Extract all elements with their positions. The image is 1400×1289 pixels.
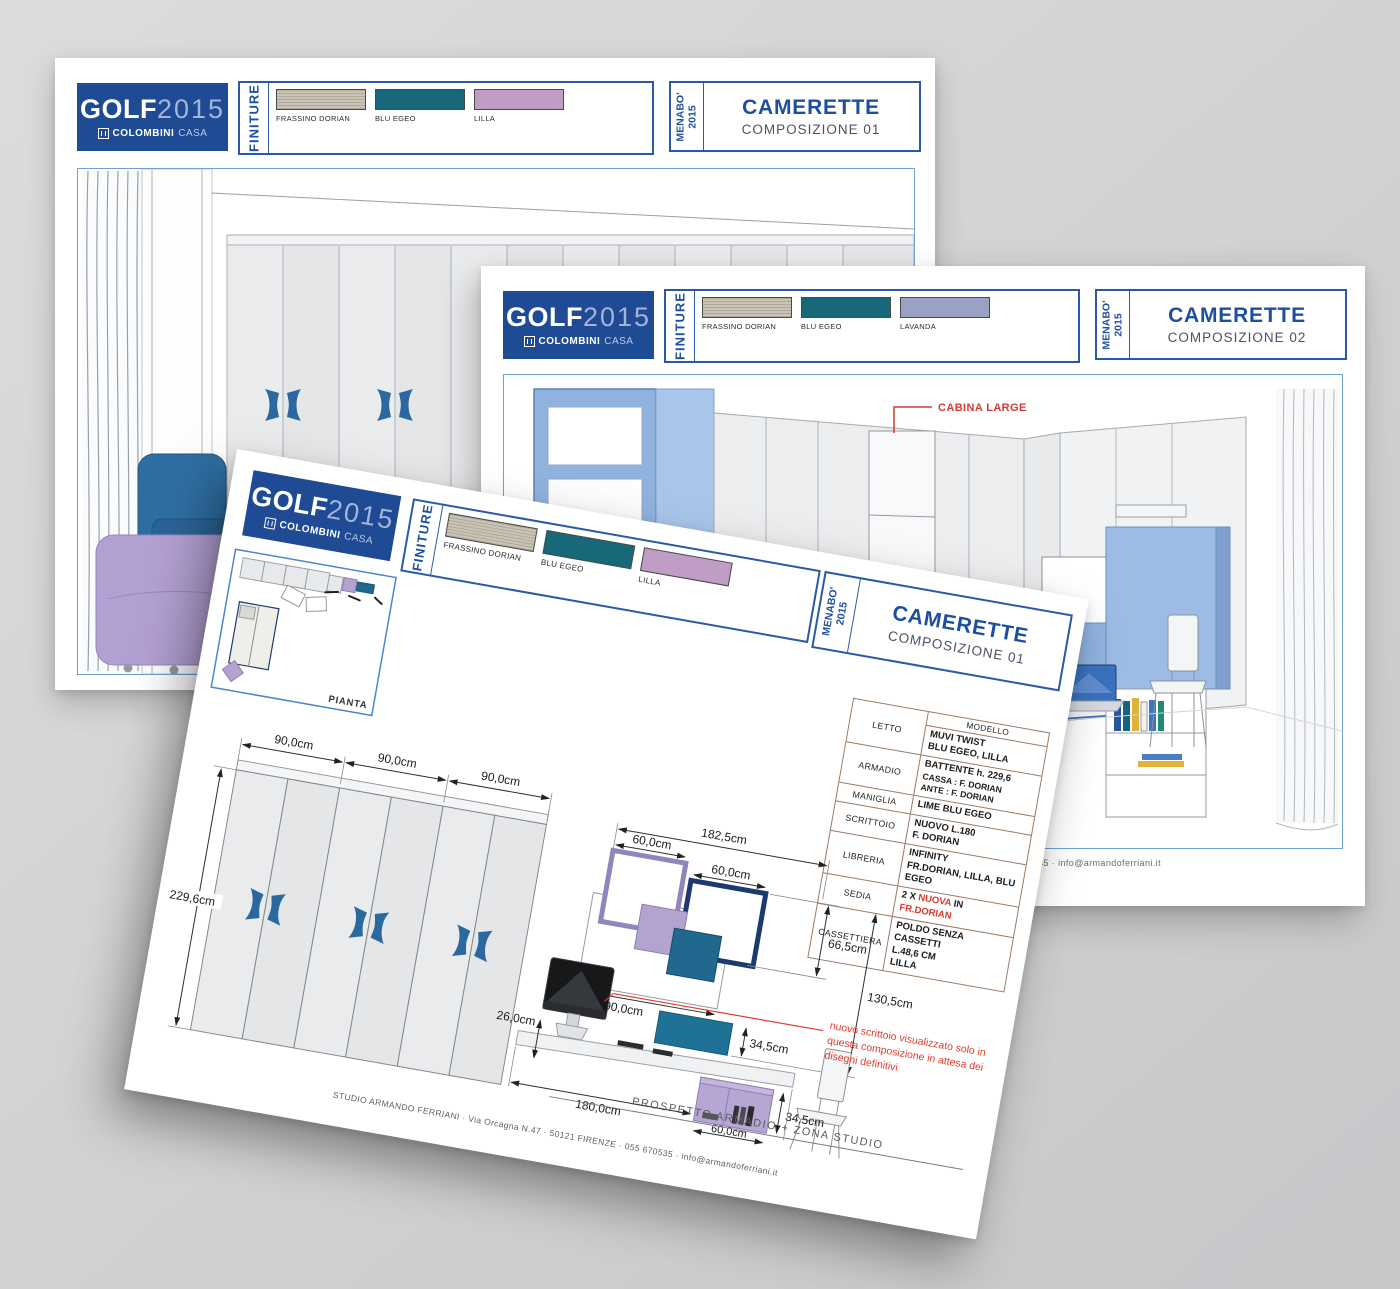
finish-swatches: FRASSINO DORIAN BLU EGEO LILLA — [276, 89, 564, 123]
cabina-large-callout: CABINA LARGE — [894, 402, 1027, 433]
finiture-strip: FINITURE — [666, 291, 695, 361]
swatch-chip — [900, 297, 990, 318]
swatch-frassino-dorian: FRASSINO DORIAN — [276, 89, 366, 123]
menabo-strip: MENABO'2015 — [671, 83, 704, 150]
sheet-subtitle: COMPOSIZIONE 02 — [1168, 330, 1307, 345]
title-box: MENABO'2015 CAMERETTE COMPOSIZIONE 02 — [1095, 289, 1347, 360]
title-box: MENABO'2015 CAMERETTE COMPOSIZIONE 01 — [811, 571, 1073, 692]
svg-text:229,6cm: 229,6cm — [168, 887, 216, 909]
golf-2015-logo: GOLF2015 COLOMBINICASA — [77, 83, 228, 151]
finiture-box: FINITURE FRASSINO DORIAN BLU EGEO LAVAND… — [664, 289, 1080, 363]
swatch-blu-egeo: BLU EGEO — [375, 89, 465, 123]
logo-wordmark: GOLF2015 — [506, 304, 651, 331]
plan-chair — [306, 597, 326, 612]
sheet-subtitle: COMPOSIZIONE 01 — [742, 122, 881, 137]
svg-text:130,5cm: 130,5cm — [866, 990, 914, 1012]
curtain-right — [1276, 389, 1338, 830]
menabo-label: MENABO'2015 — [1101, 300, 1124, 349]
swatch-lavanda: LAVANDA — [900, 297, 990, 331]
swatch-chip — [702, 297, 792, 318]
finiture-label: FINITURE — [409, 503, 436, 573]
cabina-large-label: CABINA LARGE — [938, 402, 1027, 414]
finiture-strip: FINITURE — [240, 83, 269, 153]
finiture-box: FINITURE FRASSINO DORIAN BLU EGEO LILLA — [238, 81, 654, 155]
logo-wordmark: GOLF2015 — [80, 96, 225, 123]
logo-company-line: COLOMBINICASA — [98, 128, 208, 139]
svg-text:90,0cm: 90,0cm — [377, 750, 418, 771]
swatch-blu-egeo: BLU EGEO — [540, 530, 635, 582]
svg-text:60,0cm: 60,0cm — [631, 832, 672, 853]
finiture-label: FINITURE — [247, 84, 262, 152]
svg-text:66,5cm: 66,5cm — [827, 936, 868, 957]
shelf-cube-teal — [666, 928, 721, 982]
imac — [538, 957, 614, 1043]
swatch-chip — [276, 89, 366, 110]
sheet-title-block: CAMERETTE COMPOSIZIONE 01 — [847, 579, 1071, 689]
swatch-blu-egeo: BLU EGEO — [801, 297, 891, 331]
finiture-strip: FINITURE — [403, 501, 444, 575]
logo-company-line: COLOMBINICASA — [524, 336, 634, 347]
desk-background: GOLF2015 COLOMBINICASA FINITURE FRASSINO… — [0, 0, 1400, 1289]
golf-2015-logo: GOLF2015 COLOMBINICASA — [503, 291, 654, 359]
svg-text:182,5cm: 182,5cm — [700, 826, 748, 848]
bookshelf — [1106, 689, 1206, 817]
swatch-chip — [801, 297, 891, 318]
sheet-title: CAMERETTE — [742, 96, 880, 119]
menabo-label: MENABO'2015 — [821, 586, 852, 638]
sheet-title: CAMERETTE — [1168, 304, 1306, 327]
finish-swatches: FRASSINO DORIAN BLU EGEO LAVANDA — [702, 297, 990, 331]
menabo-label: MENABO'2015 — [675, 92, 698, 141]
swatch-chip — [474, 89, 564, 110]
swatch-frassino-dorian: FRASSINO DORIAN — [702, 297, 792, 331]
shelf-box-teal — [654, 1011, 732, 1055]
title-box: MENABO'2015 CAMERETTE COMPOSIZIONE 01 — [669, 81, 921, 152]
golf-2015-logo: GOLF2015 COLOMBINICASA — [242, 470, 401, 561]
swatch-lilla: LILLA — [474, 89, 564, 123]
svg-text:60,0cm: 60,0cm — [710, 862, 751, 883]
colombini-mark-icon — [264, 517, 277, 530]
pianta-plan-box: PIANTA — [210, 548, 397, 716]
swatch-chip — [375, 89, 465, 110]
menabo-strip: MENABO'2015 — [1097, 291, 1130, 358]
pianta-svg: PIANTA — [210, 548, 397, 716]
swatch-lilla: LILLA — [638, 547, 733, 599]
svg-text:90,0cm: 90,0cm — [480, 768, 521, 789]
colombini-mark-icon — [98, 128, 109, 139]
svg-text:90,0cm: 90,0cm — [273, 732, 314, 753]
ceiling-line — [212, 193, 914, 229]
wardrobe-elevation — [190, 760, 548, 1085]
sheet-title-block: CAMERETTE COMPOSIZIONE 01 — [703, 83, 919, 150]
svg-text:34,5cm: 34,5cm — [748, 1036, 789, 1057]
finiture-label: FINITURE — [673, 292, 688, 360]
sheet-title-block: CAMERETTE COMPOSIZIONE 02 — [1129, 291, 1345, 358]
swatch-frassino-dorian: FRASSINO DORIAN — [443, 513, 538, 565]
plan-lilac-unit — [342, 578, 357, 593]
colombini-mark-icon — [524, 336, 535, 347]
